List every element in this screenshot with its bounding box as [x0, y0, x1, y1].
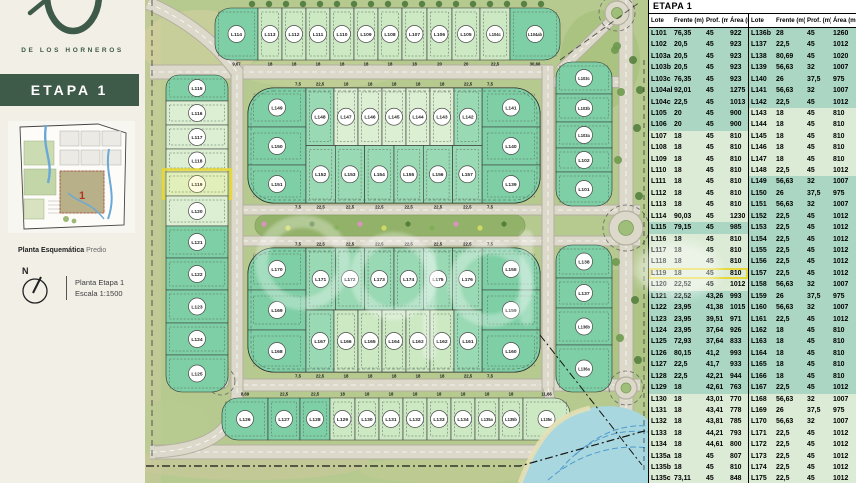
cell: 22,5 [774, 211, 805, 222]
cell: 922 [728, 28, 748, 39]
table-row-L105[interactable]: L1052045900L1431845810 [649, 108, 856, 119]
cell: 45 [805, 359, 831, 370]
cell: 926 [728, 325, 748, 336]
lot-label: L117 [192, 135, 203, 141]
cell: L158 [749, 279, 774, 290]
table-row-L107[interactable]: L1071845810L1451845810 [649, 131, 856, 142]
cell: 26 [774, 291, 805, 302]
table-row-L112[interactable]: L1121845810L1502637,5975 [649, 188, 856, 199]
cell: L110 [649, 165, 672, 176]
cell: 45 [805, 131, 831, 142]
cell: 90,03 [672, 211, 704, 222]
table-row-L103a[interactable]: L103a20,545923L13880,69451020 [649, 51, 856, 62]
cell: 1020 [831, 51, 856, 62]
cell: 56,63 [774, 199, 805, 210]
cell: 1007 [831, 279, 856, 290]
lot-label: L168 [271, 349, 282, 355]
cell: 810 [728, 142, 748, 153]
dimension-label: 18 [368, 82, 373, 87]
cell: 20 [672, 119, 704, 130]
lot-label: L116 [192, 111, 203, 117]
lot-label: L126 [239, 417, 250, 423]
lot-label: L109 [360, 32, 371, 38]
cell: 810 [728, 165, 748, 176]
table-row-L120[interactable]: L12022,52451012L15856,63321007 [649, 279, 856, 290]
cell: L114 [649, 211, 672, 222]
cell: 26 [774, 74, 805, 85]
table-row-L104c[interactable]: L104c22,5451013L14222,5451012 [649, 97, 856, 108]
cell: 45 [805, 268, 831, 279]
cell: 56,63 [774, 85, 805, 96]
dimension-label: 18 [344, 82, 349, 87]
table-row-L114[interactable]: L11490,03451230L15222,5451012 [649, 211, 856, 222]
lot-label: L139 [505, 182, 516, 188]
table-row-L129[interactable]: L1291842,61763L16722,5451012 [649, 382, 856, 393]
lot-label: L160 [505, 349, 516, 355]
lot-label: L155 [403, 172, 414, 178]
dimension-label: 22,5 [463, 205, 472, 210]
cell: L153 [749, 222, 774, 233]
cell: 45 [704, 74, 728, 85]
tree-icon [436, 1, 442, 7]
cell: 45 [704, 131, 728, 142]
cell: 770 [728, 394, 748, 405]
dimension-label: 18 [364, 62, 369, 67]
table-row-L134[interactable]: L1341844,61800L17222,5451012 [649, 439, 856, 450]
table-row-L113[interactable]: L1131845810L15156,63321007 [649, 199, 856, 210]
col-prof: Prof. (m) [805, 14, 831, 27]
tree-icon [617, 88, 625, 96]
dimension-label: 22,5 [316, 82, 325, 87]
cell: 975 [831, 188, 856, 199]
table-row-L108[interactable]: L1081845810L1461845810 [649, 142, 856, 153]
lot-label: L128 [309, 417, 320, 423]
cell: 810 [831, 119, 856, 130]
table-header: Lote Frente (m) Prof. (m) Área (m²) Lote… [649, 14, 856, 28]
cell: L144 [749, 119, 774, 130]
cell: L134 [649, 439, 672, 450]
cell: 810 [728, 245, 748, 256]
cell: 810 [728, 176, 748, 187]
cell: 22,5 [774, 428, 805, 439]
lot-label: L175 [432, 277, 443, 283]
cell: 45 [704, 211, 728, 222]
cell: 22,5 [672, 97, 704, 108]
cell: L138 [749, 51, 774, 62]
cell: 18 [774, 371, 805, 382]
table-row-L103c[interactable]: L103c76,3545923L1402637,5975 [649, 74, 856, 85]
cell: L103b [649, 62, 672, 73]
table-row-L106[interactable]: L1062045900L1441845810 [649, 119, 856, 130]
cell: 42,21 [704, 371, 728, 382]
cell: 1007 [831, 302, 856, 313]
cell: L104ab [649, 85, 672, 96]
site-plan: L1149,67L11318L11218L11118L11018L10918L1… [145, 0, 648, 483]
dimension-label: 22,5 [346, 205, 355, 210]
cell: L141 [749, 85, 774, 96]
table-row-L110[interactable]: L1101845810L14822,5451012 [649, 165, 856, 176]
table-row-L130[interactable]: L1301843,01770L16856,63321007 [649, 394, 856, 405]
table-row-L117[interactable]: L1171845810L15522,5451012 [649, 245, 856, 256]
cell: 45 [805, 108, 831, 119]
cell: 56,63 [774, 302, 805, 313]
cell: L162 [749, 325, 774, 336]
dimension-label: 18 [389, 392, 394, 397]
table-row-L121[interactable]: L12122,5243,26993L1592637,5975 [649, 291, 856, 302]
cell: L150 [749, 188, 774, 199]
cell: L128 [649, 371, 672, 382]
table-row-L128[interactable]: L12822,542,21944L1661845810 [649, 371, 856, 382]
cell: 1260 [831, 28, 856, 39]
cell: 993 [728, 291, 748, 302]
table-row-L135b[interactable]: L135b1845810L17422,5451012 [649, 462, 856, 473]
cell: 22,5 [672, 371, 704, 382]
cell: 810 [831, 371, 856, 382]
cell: L118 [649, 256, 672, 267]
dimension-label: 18 [509, 392, 514, 397]
plan-page: DE LOS HORNEROS ETAPA 1 [0, 0, 856, 483]
lot-label: L174 [403, 277, 414, 283]
cell: 45 [704, 199, 728, 210]
cell: 810 [831, 359, 856, 370]
svg-text:N: N [22, 266, 29, 276]
cell: L155 [749, 245, 774, 256]
table-row-L122[interactable]: L12223,9541,381015L16056,63321007 [649, 302, 856, 313]
cell: 37,5 [805, 291, 831, 302]
cell: 56,63 [774, 279, 805, 290]
lot-label: L112 [289, 32, 300, 38]
cell: L126 [649, 348, 672, 359]
cell: 80,15 [672, 348, 704, 359]
tree-icon [634, 356, 642, 364]
cell: L152 [749, 211, 774, 222]
cell: 92,01 [672, 85, 704, 96]
cell: 810 [831, 325, 856, 336]
cell: 45 [704, 462, 728, 473]
cell: 45 [704, 245, 728, 256]
dimension-label: 7,5 [295, 242, 302, 247]
brand-name: DE LOS HORNEROS [0, 47, 145, 54]
tree-icon [616, 334, 624, 342]
cell: 45 [805, 222, 831, 233]
planting-icon [357, 221, 362, 226]
cell: L137 [749, 39, 774, 50]
cell: 18 [672, 428, 704, 439]
cell: 810 [728, 154, 748, 165]
cell: 18 [672, 142, 704, 153]
lot-label: L165 [364, 339, 375, 345]
planting-icon [333, 225, 338, 230]
lot-label: L105 [460, 32, 471, 38]
cell: 45 [805, 39, 831, 50]
cell: 22,52 [672, 279, 704, 290]
table-row-L103b[interactable]: L103b20,545923L13956,63321007 [649, 62, 856, 73]
lot-label: L170 [271, 267, 282, 273]
cell: 23,95 [672, 325, 704, 336]
cell: 45 [805, 154, 831, 165]
cell: 1007 [831, 62, 856, 73]
table-row-L135c[interactable]: L135c73,1145848L17522,5451012 [649, 473, 856, 483]
cell: 810 [831, 131, 856, 142]
cell: 810 [728, 199, 748, 210]
table-row-L116[interactable]: L1161845810L15422,5451012 [649, 234, 856, 245]
cell: 1012 [831, 234, 856, 245]
table-row-L135a[interactable]: L135a1845807L17322,5451012 [649, 451, 856, 462]
lot-label: L171 [315, 277, 326, 283]
lot-label: L140 [505, 144, 516, 150]
dimension-label: 22,5 [316, 374, 325, 379]
tree-icon [470, 1, 476, 7]
cell: L102 [649, 39, 672, 50]
lot-label: L120 [191, 209, 202, 215]
cell: L127 [649, 359, 672, 370]
planting-icon [285, 225, 290, 230]
cell: L167 [749, 382, 774, 393]
dimension-label: 22,5 [464, 374, 473, 379]
cell: 37,64 [704, 325, 728, 336]
lot-label: L131 [385, 417, 396, 423]
dimension-label: 22,5 [491, 62, 500, 67]
cell: 1007 [831, 85, 856, 96]
cell: L119 [649, 268, 672, 279]
dimension-label: 7,5 [295, 205, 302, 210]
cell: 933 [728, 359, 748, 370]
dimension-label: 22,5 [346, 242, 355, 247]
lot-label: L133 [433, 417, 444, 423]
lot-label: L158 [505, 267, 516, 273]
lot-label: L106 [434, 32, 445, 38]
cell: 810 [831, 154, 856, 165]
cell: 20,5 [672, 62, 704, 73]
cell: 32 [805, 85, 831, 96]
lot-label: L136a [578, 366, 590, 371]
cell: 993 [728, 348, 748, 359]
dimension-label: 18 [416, 82, 421, 87]
cell: 1012 [831, 439, 856, 450]
cell: L173 [749, 451, 774, 462]
table-row-L115[interactable]: L11579,1545985L15322,5451012 [649, 222, 856, 233]
dimension-label: 18 [440, 82, 445, 87]
tree-icon [283, 1, 289, 7]
cell: L113 [649, 199, 672, 210]
dimension-label: 18 [365, 392, 370, 397]
lot-label: L157 [462, 172, 473, 178]
cell: 810 [831, 348, 856, 359]
cell: L115 [649, 222, 672, 233]
cell: 22,5 [774, 439, 805, 450]
tree-icon [633, 124, 641, 132]
table-row-L101[interactable]: L10176,3545922L136b28451260 [649, 28, 856, 39]
cell: 810 [831, 142, 856, 153]
site-plan-svg: L1149,67L11318L11218L11118L11018L10918L1… [145, 0, 648, 483]
cell: 22,5 [774, 451, 805, 462]
lot-label: L148 [314, 115, 325, 121]
table-row-L127[interactable]: L12722,541,7933L1651845810 [649, 359, 856, 370]
cell: L166 [749, 371, 774, 382]
cell: L105 [649, 108, 672, 119]
tree-icon [614, 156, 622, 164]
plan-scale: Escala 1:1500 [75, 288, 124, 299]
cell: 22,5 [774, 462, 805, 473]
table-row-L109[interactable]: L1091845810L1471845810 [649, 154, 856, 165]
tree-icon [611, 46, 619, 54]
cell: 45 [805, 451, 831, 462]
cell: 56,63 [774, 416, 805, 427]
cell: 18 [774, 131, 805, 142]
table-row-L104ab[interactable]: L104ab92,01451275L14156,63321007 [649, 85, 856, 96]
cell: 45 [704, 154, 728, 165]
table-row-L118[interactable]: L1181845810L15622,5451012 [649, 256, 856, 267]
lot-label: L102 [578, 158, 589, 164]
cell: 807 [728, 451, 748, 462]
cell: 22,5 [774, 314, 805, 325]
cell: 763 [728, 382, 748, 393]
table-row-L124[interactable]: L12423,9537,64926L1621845810 [649, 325, 856, 336]
cell: 22,5 [774, 165, 805, 176]
table-row-L131[interactable]: L1311843,41778L1692637,5975 [649, 405, 856, 416]
compass-icon: N [8, 261, 68, 309]
lot-label: L103a [578, 133, 590, 138]
cell: 45 [805, 51, 831, 62]
tree-icon [453, 1, 459, 7]
cell: L130 [649, 394, 672, 405]
cell: 18 [672, 439, 704, 450]
cell: 45 [805, 234, 831, 245]
cell: 18 [672, 462, 704, 473]
cell: 1012 [831, 165, 856, 176]
lot-label: L124 [191, 337, 202, 343]
tree-icon [612, 258, 620, 266]
cell: L139 [749, 62, 774, 73]
dimension-label: 18 [388, 62, 393, 67]
cell: 45 [704, 119, 728, 130]
tree-icon [636, 86, 644, 94]
cell: 1012 [728, 279, 748, 290]
cell: 18 [672, 234, 704, 245]
cell: 923 [728, 62, 748, 73]
lot-label: L167 [314, 339, 325, 345]
cell: L103c [649, 74, 672, 85]
cell: L164 [749, 348, 774, 359]
col-area: Área (m²) [728, 14, 748, 27]
lot-label: L111 [313, 32, 324, 38]
lot-label: L135b [505, 417, 517, 422]
cell: 22,52 [672, 291, 704, 302]
cell: 45 [704, 165, 728, 176]
tree-icon [334, 1, 340, 7]
cell: L104c [649, 97, 672, 108]
cell: L157 [749, 268, 774, 279]
cell: 45 [805, 348, 831, 359]
planting-icon [453, 221, 458, 226]
cell: 1007 [831, 416, 856, 427]
lot-label: L108 [384, 32, 395, 38]
col-frente: Frente (m) [774, 14, 805, 27]
cell: 23,95 [672, 314, 704, 325]
cell: 18 [672, 268, 704, 279]
table-title: ETAPA 1 [649, 0, 856, 14]
cell: 26 [774, 188, 805, 199]
cell: 1012 [831, 473, 856, 483]
table-row-L132[interactable]: L1321843,81785L17056,63321007 [649, 416, 856, 427]
cell: 45 [704, 268, 728, 279]
cell: 26 [774, 405, 805, 416]
cell: 45 [704, 39, 728, 50]
cell: L125 [649, 336, 672, 347]
table-row-L123[interactable]: L12323,9539,51971L16122,5451012 [649, 314, 856, 325]
dimension-label: 18 [412, 62, 417, 67]
cell: 923 [728, 39, 748, 50]
lot-label: L136b [578, 324, 590, 329]
cell: 43,81 [704, 416, 728, 427]
cell: L120 [649, 279, 672, 290]
table-row-L102[interactable]: L10220,545923L13722,5451012 [649, 39, 856, 50]
lot-label: L137 [578, 291, 589, 297]
cell: 32 [805, 176, 831, 187]
cell: 45 [805, 473, 831, 483]
cell: L151 [749, 199, 774, 210]
cell: 18 [672, 256, 704, 267]
lot-label: L103c [578, 76, 590, 81]
table-row-L133[interactable]: L1331844,21793L17122,5451012 [649, 428, 856, 439]
cell: 44,61 [704, 439, 728, 450]
cell: 32 [805, 416, 831, 427]
lot-label: L156 [432, 172, 443, 178]
cell: 1012 [831, 256, 856, 267]
dimension-label: 22,5 [404, 205, 413, 210]
table-row-L125[interactable]: L12572,9337,64833L1631845810 [649, 336, 856, 347]
cell: L146 [749, 142, 774, 153]
tree-icon [538, 1, 544, 7]
cell: 45 [704, 188, 728, 199]
cell: 76,35 [672, 28, 704, 39]
cell: 45 [704, 176, 728, 187]
cell: 22,5 [774, 473, 805, 483]
cell: 1013 [728, 97, 748, 108]
cell: 1012 [831, 222, 856, 233]
planting-icon [501, 221, 506, 226]
cell: 1012 [831, 97, 856, 108]
planting-icon [381, 225, 386, 230]
cell: 23,95 [672, 302, 704, 313]
cell: 45 [805, 428, 831, 439]
tree-icon [402, 1, 408, 7]
minimap-caption: Planta Esquemática Predio [18, 247, 106, 254]
cell: 45 [805, 462, 831, 473]
cell: 1015 [728, 302, 748, 313]
cell: L170 [749, 416, 774, 427]
cell: L117 [649, 245, 672, 256]
table-body: L10176,3545922L136b28451260L10220,545923… [649, 28, 856, 483]
cell: 45 [704, 222, 728, 233]
cell: 18 [672, 165, 704, 176]
cell: 800 [728, 439, 748, 450]
lot-label: L130 [361, 417, 372, 423]
lot-label: L153 [344, 172, 355, 178]
cell: 810 [831, 336, 856, 347]
table-row-L119[interactable]: L1191845810L15722,5451012 [649, 268, 856, 279]
planting-icon [477, 225, 482, 230]
dimension-label: 22,5 [375, 205, 384, 210]
table-row-L111[interactable]: L1111845810L14956,63321007 [649, 176, 856, 187]
cell: 45 [704, 473, 728, 483]
cell: 1012 [831, 382, 856, 393]
table-row-L126[interactable]: L12680,1541,2993L1641845810 [649, 348, 856, 359]
cell: 56,63 [774, 176, 805, 187]
dimension-label: 18 [344, 374, 349, 379]
lot-label: L143 [436, 115, 447, 121]
cell: 18 [774, 119, 805, 130]
